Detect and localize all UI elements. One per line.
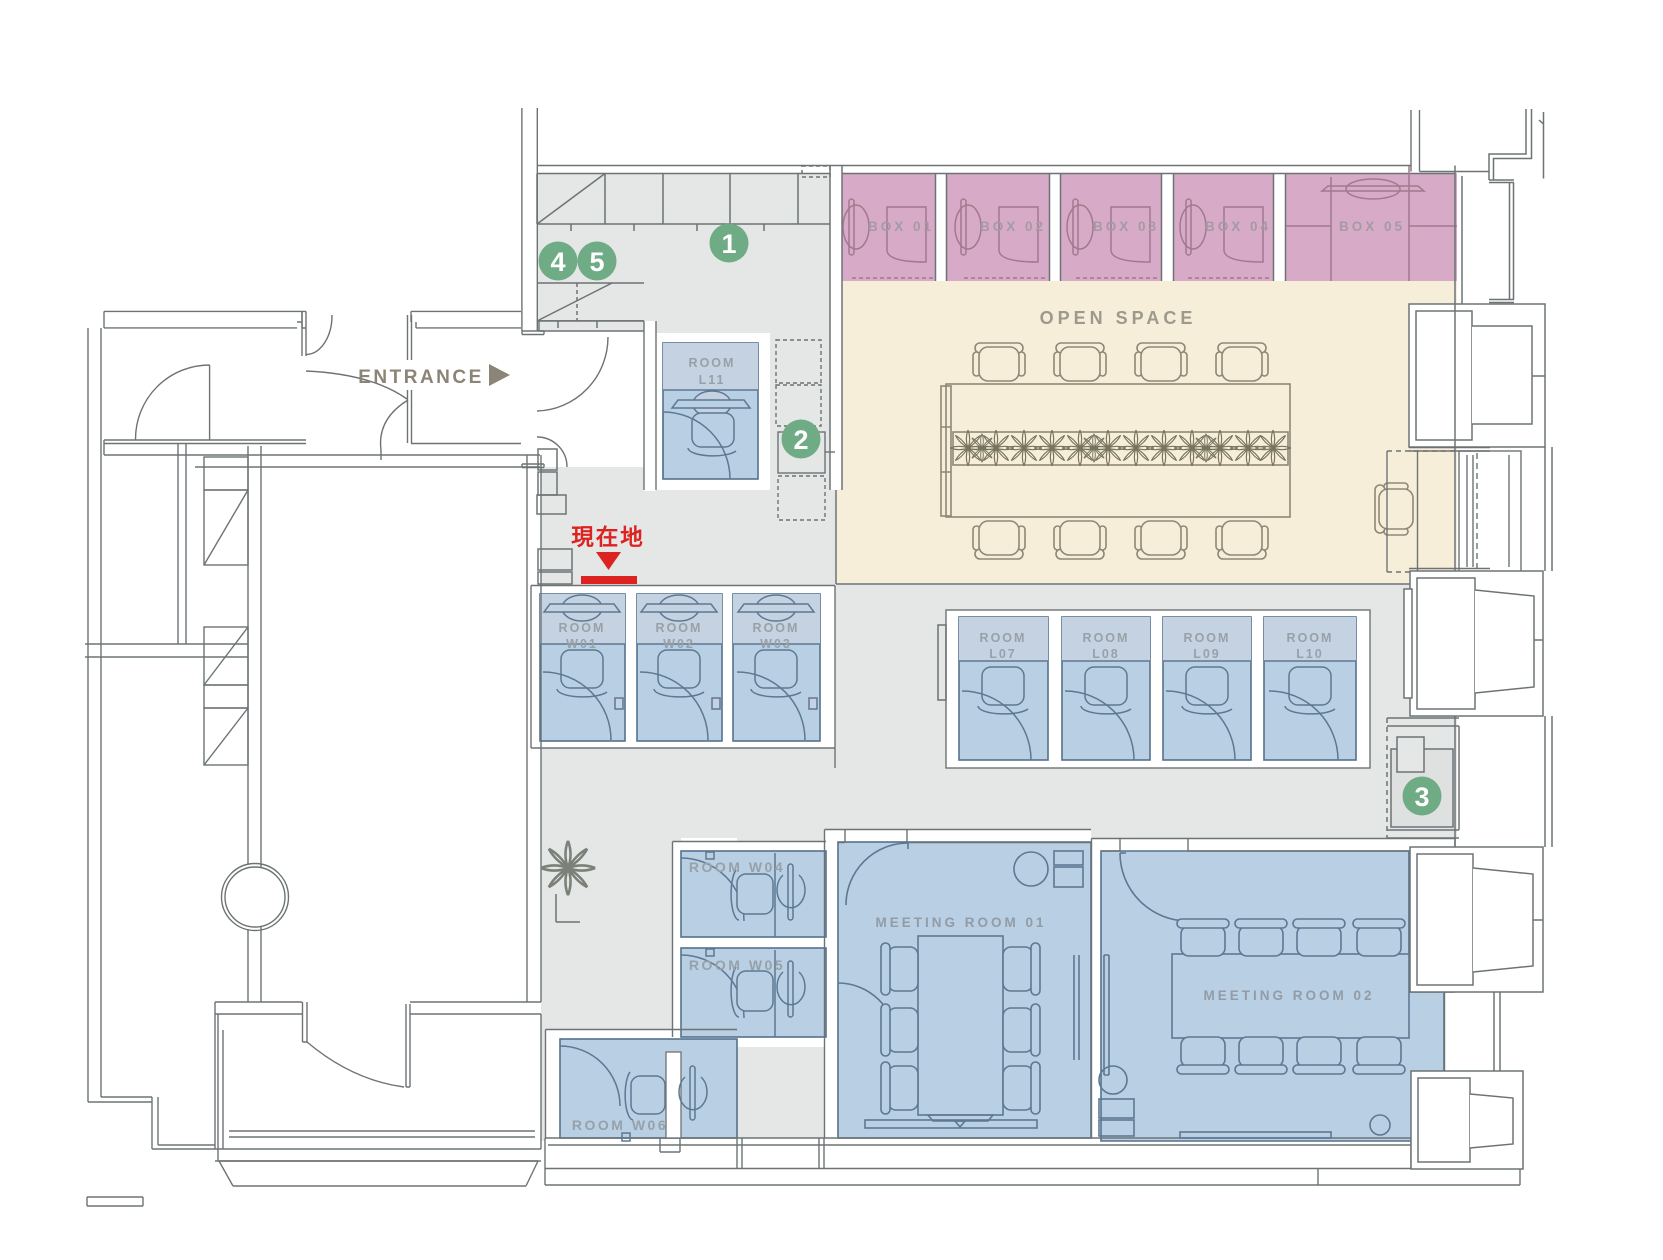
svg-text:5: 5 [589, 247, 604, 277]
svg-text:ROOM: ROOM [656, 621, 703, 635]
svg-text:OPEN SPACE: OPEN SPACE [1040, 308, 1197, 328]
svg-text:BOX 03: BOX 03 [1093, 219, 1159, 234]
svg-text:L07: L07 [989, 647, 1017, 661]
svg-text:L09: L09 [1193, 647, 1221, 661]
svg-text:2: 2 [793, 425, 808, 455]
svg-text:ROOM: ROOM [559, 621, 606, 635]
svg-text:BOX 02: BOX 02 [980, 219, 1046, 234]
svg-text:ROOM: ROOM [1184, 631, 1231, 645]
svg-text:W02: W02 [663, 637, 695, 651]
svg-text:ROOM: ROOM [1083, 631, 1130, 645]
svg-text:W03: W03 [760, 637, 792, 651]
svg-text:ROOM W04: ROOM W04 [689, 859, 785, 875]
svg-text:4: 4 [550, 247, 565, 277]
svg-text:L08: L08 [1092, 647, 1120, 661]
svg-text:BOX 04: BOX 04 [1205, 219, 1271, 234]
svg-text:ROOM: ROOM [753, 621, 800, 635]
svg-text:L10: L10 [1296, 647, 1324, 661]
svg-text:W01: W01 [566, 637, 598, 651]
svg-text:ROOM: ROOM [1287, 631, 1334, 645]
svg-text:BOX 01: BOX 01 [868, 219, 934, 234]
svg-text:ENTRANCE: ENTRANCE [358, 367, 484, 388]
svg-text:現在地: 現在地 [571, 525, 645, 550]
svg-text:1: 1 [721, 229, 736, 259]
svg-text:MEETING ROOM 02: MEETING ROOM 02 [1203, 988, 1374, 1003]
svg-text:BOX 05: BOX 05 [1339, 219, 1405, 234]
svg-text:3: 3 [1414, 782, 1429, 812]
svg-text:ROOM W06: ROOM W06 [572, 1117, 668, 1133]
svg-text:MEETING ROOM 01: MEETING ROOM 01 [875, 915, 1046, 930]
svg-text:ROOM: ROOM [689, 356, 736, 370]
svg-text:L11: L11 [699, 373, 726, 387]
svg-text:ROOM: ROOM [980, 631, 1027, 645]
svg-text:ROOM W05: ROOM W05 [689, 957, 785, 973]
